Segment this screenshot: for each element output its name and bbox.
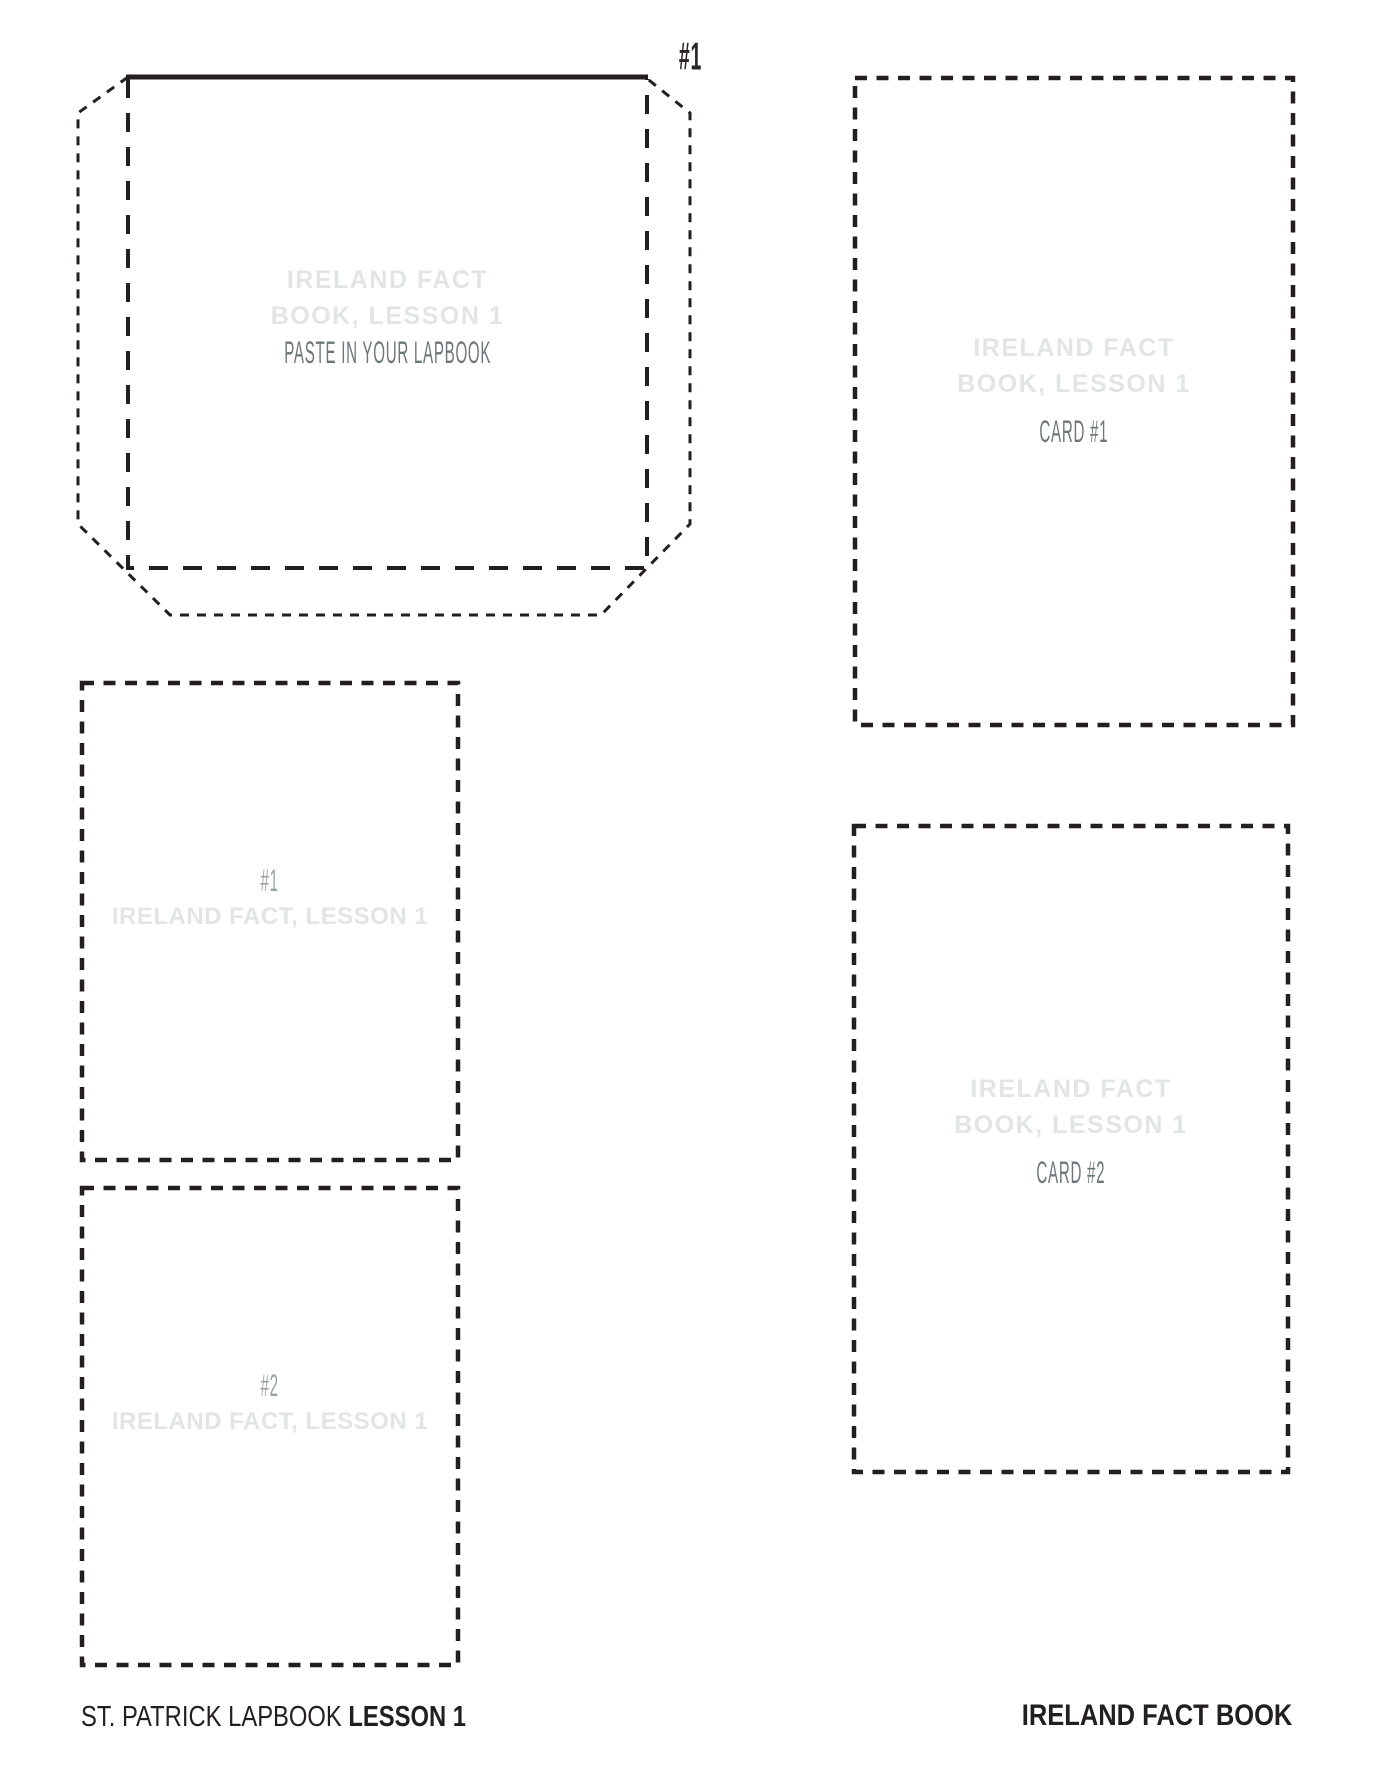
page: #1 IRELAND FACT BOOK, LESSON 1 PASTE IN …	[0, 0, 1376, 1772]
slip2-number-row: #2	[82, 1371, 458, 1405]
slip1-label-block: #1 IRELAND FACT, LESSON 1	[82, 866, 458, 932]
slip2-title: IRELAND FACT, LESSON 1	[82, 1407, 458, 1437]
card1-label-row: CARD #1	[855, 416, 1293, 452]
card1-label: CARD #1	[1040, 408, 1109, 459]
card2-title-line1: IRELAND FACT	[854, 1071, 1288, 1107]
footer-left-regular: ST. PATRICK LAPBOOK	[81, 1701, 348, 1733]
slip2-label-block: #2 IRELAND FACT, LESSON 1	[82, 1371, 458, 1437]
card1-title-line2: BOOK, LESSON 1	[855, 366, 1293, 402]
card1-label-block: IRELAND FACT BOOK, LESSON 1 CARD #1	[855, 330, 1293, 452]
footer-right-title: IRELAND FACT BOOK	[974, 1699, 1292, 1733]
envelope-instruction: PASTE IN YOUR LAPBOOK	[284, 330, 491, 378]
envelope-instruction-row: PASTE IN YOUR LAPBOOK	[128, 338, 647, 372]
envelope-title-line1: IRELAND FACT	[128, 262, 647, 298]
envelope-number-text: #1	[678, 32, 701, 80]
card2-title-line2: BOOK, LESSON 1	[854, 1107, 1288, 1143]
card2-label-block: IRELAND FACT BOOK, LESSON 1 CARD #2	[854, 1071, 1288, 1193]
slip1-number: #1	[261, 858, 279, 906]
envelope-title-line2: BOOK, LESSON 1	[128, 298, 647, 334]
card2-label: CARD #2	[1037, 1149, 1106, 1200]
footer-left-inner: ST. PATRICK LAPBOOK LESSON 1	[81, 1700, 466, 1734]
footer-left-bold: LESSON 1	[348, 1701, 466, 1733]
slip1-number-row: #1	[82, 866, 458, 900]
envelope-label-block: IRELAND FACT BOOK, LESSON 1 PASTE IN YOU…	[128, 262, 647, 372]
footer-right-inner: IRELAND FACT BOOK	[1021, 1699, 1292, 1733]
slip2-number: #2	[261, 1363, 279, 1411]
footer-left-title: ST. PATRICK LAPBOOK LESSON 1	[81, 1700, 551, 1734]
card1-title-line1: IRELAND FACT	[855, 330, 1293, 366]
slip1-title: IRELAND FACT, LESSON 1	[82, 902, 458, 932]
card2-label-row: CARD #2	[854, 1157, 1288, 1193]
envelope-number-label: #1	[658, 40, 722, 77]
